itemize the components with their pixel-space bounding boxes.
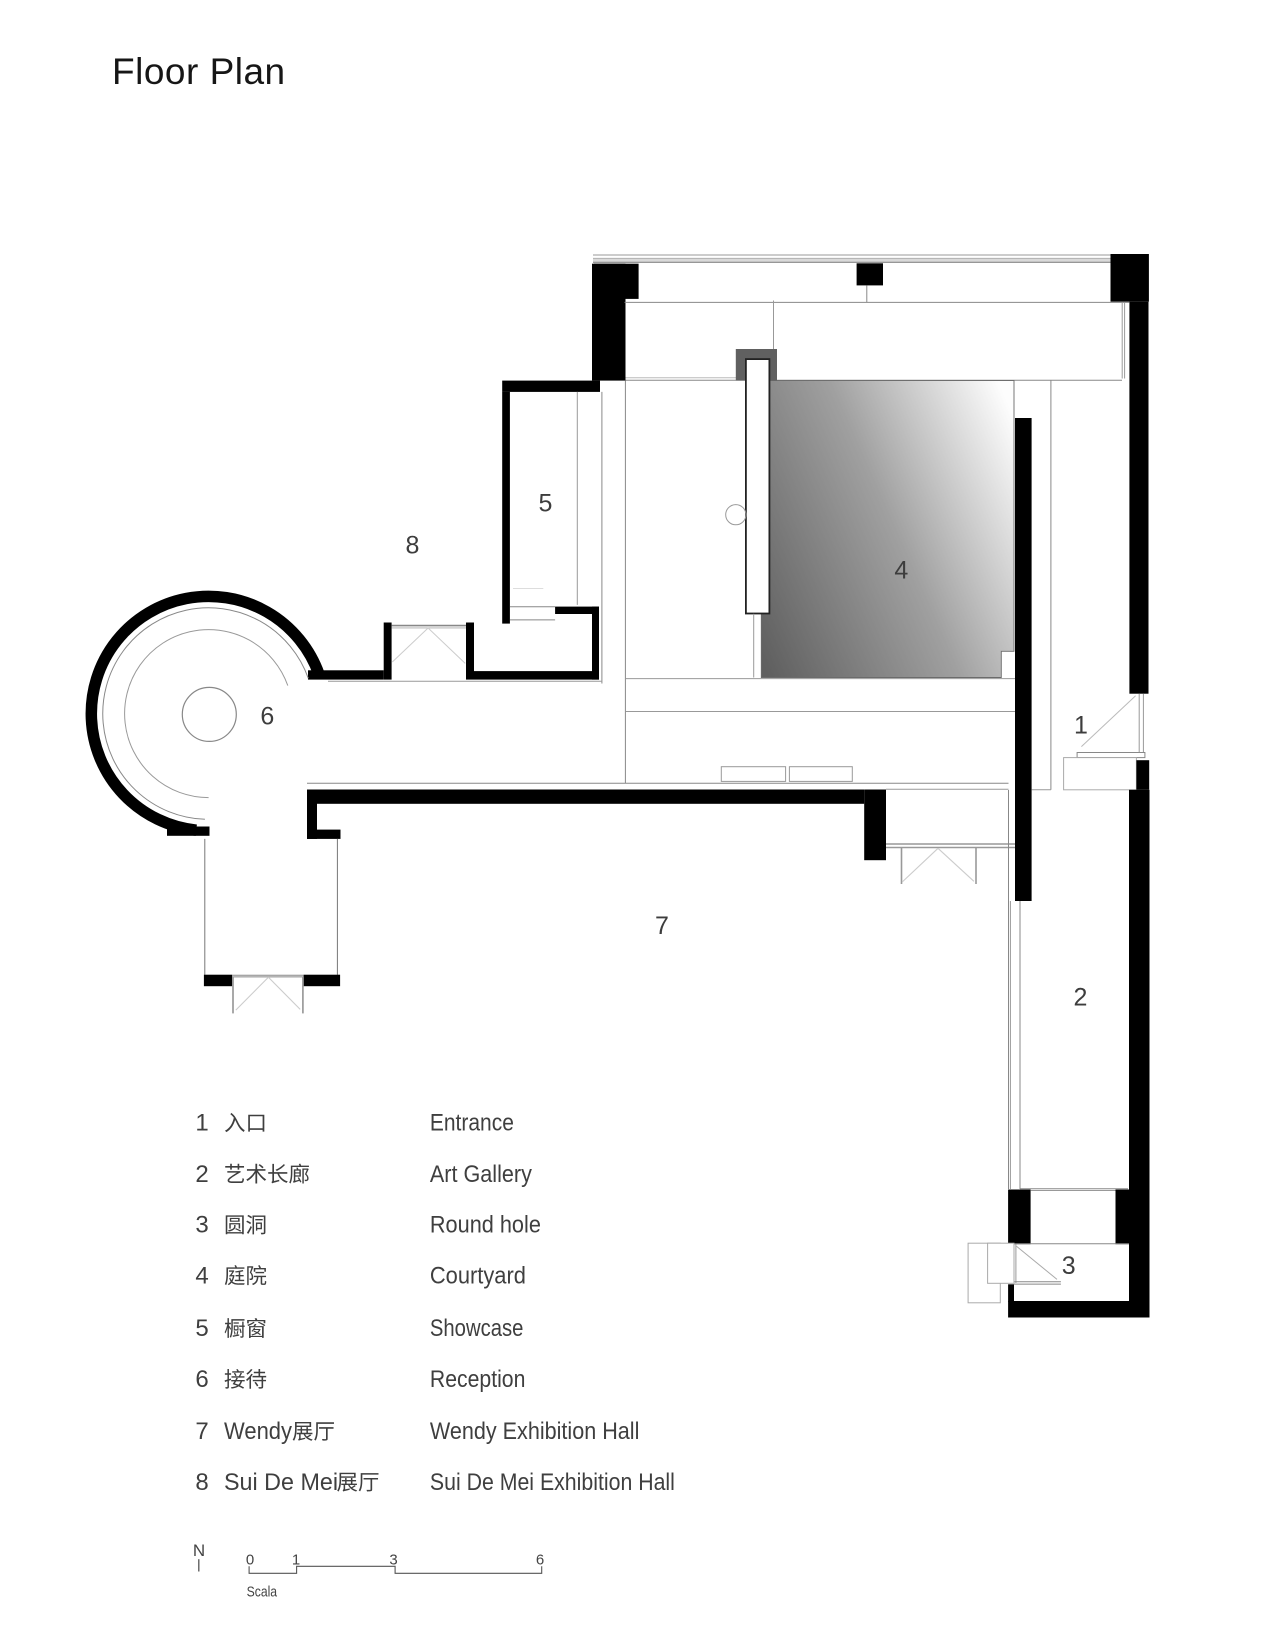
svg-text:8: 8 <box>406 532 420 560</box>
svg-text:4: 4 <box>894 557 908 585</box>
svg-text:Entrance: Entrance <box>430 1110 514 1137</box>
svg-text:N: N <box>193 1541 205 1560</box>
svg-text:7: 7 <box>195 1418 208 1445</box>
svg-text:Round hole: Round hole <box>430 1212 541 1239</box>
svg-text:5: 5 <box>195 1315 208 1342</box>
svg-text:3: 3 <box>389 1552 397 1569</box>
svg-text:3: 3 <box>195 1212 208 1239</box>
svg-text:8: 8 <box>195 1469 208 1496</box>
svg-text:Sui De Mei: Sui De Mei <box>224 1469 338 1496</box>
svg-text:4: 4 <box>195 1262 208 1289</box>
svg-text:7: 7 <box>655 912 669 940</box>
svg-text:Floor Plan: Floor Plan <box>112 51 286 92</box>
svg-text:1: 1 <box>292 1552 300 1569</box>
svg-text:Reception: Reception <box>430 1366 526 1393</box>
svg-text:5: 5 <box>538 490 552 518</box>
svg-text:2: 2 <box>195 1161 208 1188</box>
svg-text:6: 6 <box>260 703 274 731</box>
svg-text:Courtyard: Courtyard <box>430 1262 526 1289</box>
svg-text:Art Gallery: Art Gallery <box>430 1161 532 1188</box>
svg-text:Scala: Scala <box>247 1584 278 1601</box>
svg-text:3: 3 <box>1062 1252 1076 1280</box>
svg-text:Wendy Exhibition Hall: Wendy Exhibition Hall <box>430 1418 640 1445</box>
svg-text:1: 1 <box>1074 712 1088 740</box>
svg-text:6: 6 <box>536 1552 544 1569</box>
svg-text:0: 0 <box>246 1552 254 1569</box>
svg-text:Sui De Mei Exhibition Hall: Sui De Mei Exhibition Hall <box>430 1469 675 1496</box>
svg-text:1: 1 <box>195 1110 208 1137</box>
svg-text:Showcase: Showcase <box>430 1315 524 1342</box>
svg-text:2: 2 <box>1074 984 1088 1012</box>
svg-text:6: 6 <box>195 1366 208 1393</box>
svg-text:Wendy: Wendy <box>224 1418 292 1445</box>
